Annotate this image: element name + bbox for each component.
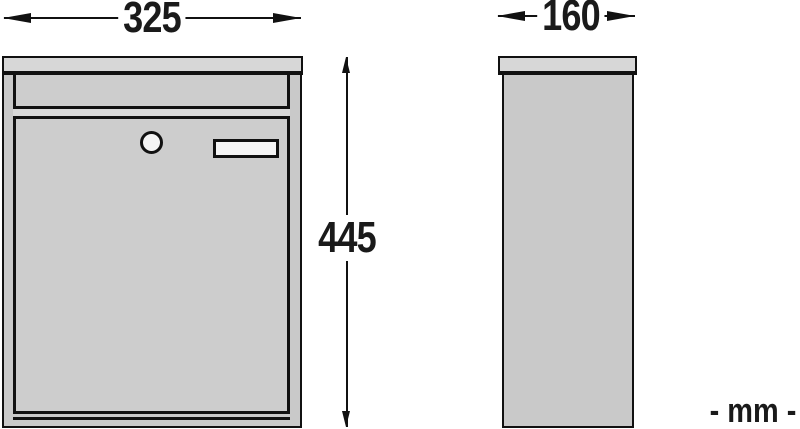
letter-flap-slot [13, 106, 290, 119]
diagram-canvas: 325 160 445 - mm - [0, 0, 800, 429]
side-view-lid [498, 56, 637, 76]
name-plate [213, 139, 279, 159]
arrow-right-icon [607, 11, 635, 21]
lock-cylinder-icon [140, 131, 163, 154]
side-view-body [502, 75, 634, 428]
arrow-left-icon [3, 13, 31, 23]
side-depth-value: 160 [537, 0, 605, 39]
unit-label: - mm - [710, 394, 797, 428]
front-width-value: 325 [118, 0, 186, 41]
front-view-lid [2, 56, 303, 76]
arrow-left-icon [497, 11, 525, 21]
arrow-up-icon [342, 57, 350, 73]
arrow-down-icon [342, 411, 350, 427]
front-view-bottom-edge [13, 417, 290, 420]
arrow-right-icon [273, 13, 301, 23]
front-view-door [13, 75, 290, 414]
height-value: 445 [313, 215, 381, 261]
